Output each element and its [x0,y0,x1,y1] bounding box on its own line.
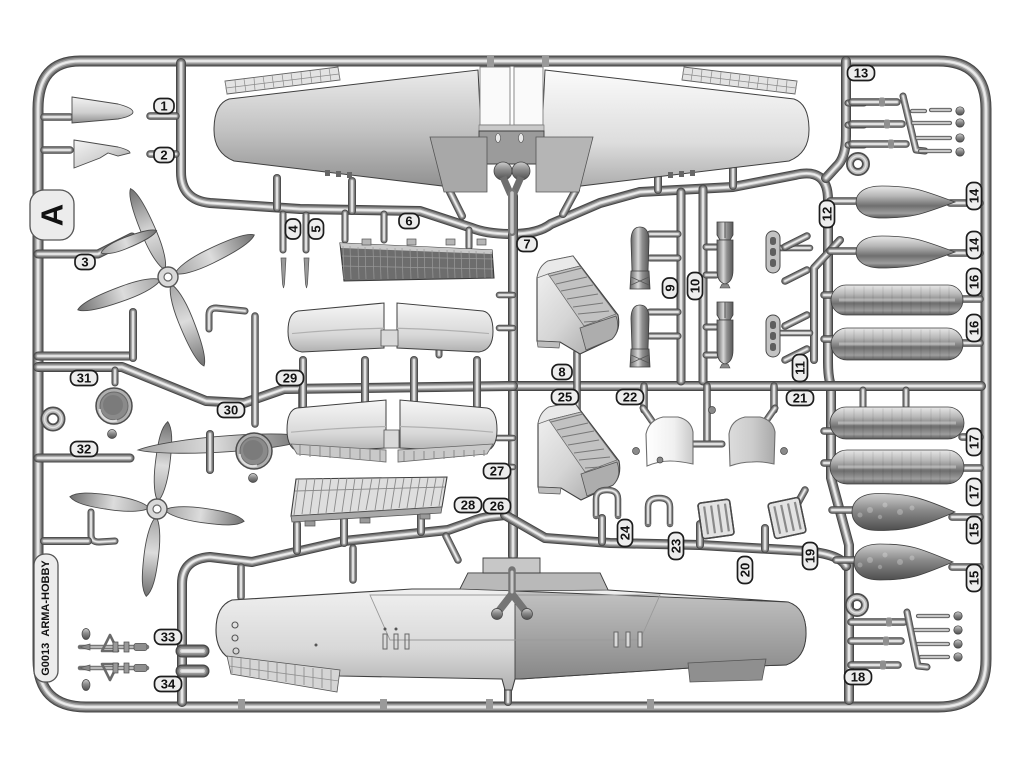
svg-text:16: 16 [967,275,982,289]
svg-text:A: A [35,204,70,226]
svg-text:24: 24 [618,525,633,540]
svg-text:18: 18 [851,670,865,685]
svg-text:20: 20 [738,563,753,577]
svg-text:G0013 ARMA-HOBBY: G0013 ARMA-HOBBY [40,560,52,676]
svg-text:4: 4 [286,225,301,233]
svg-text:28: 28 [461,498,475,513]
svg-text:10: 10 [688,279,703,293]
svg-text:32: 32 [77,442,91,457]
svg-text:8: 8 [558,365,565,380]
svg-text:16: 16 [967,321,982,335]
svg-text:15: 15 [967,523,982,537]
svg-text:14: 14 [967,188,982,203]
svg-text:33: 33 [161,630,175,645]
svg-text:17: 17 [967,485,982,499]
svg-text:6: 6 [405,214,412,229]
svg-text:11: 11 [793,361,808,375]
svg-text:9: 9 [663,284,678,291]
svg-text:27: 27 [490,464,504,479]
svg-text:17: 17 [967,435,982,449]
svg-text:25: 25 [558,390,572,405]
svg-text:21: 21 [793,391,807,406]
svg-text:15: 15 [967,571,982,585]
svg-text:22: 22 [623,390,637,405]
svg-text:14: 14 [967,237,982,252]
svg-text:2: 2 [160,148,167,163]
svg-text:30: 30 [224,403,238,418]
svg-text:3: 3 [81,255,88,270]
svg-text:19: 19 [803,549,818,563]
svg-text:29: 29 [283,371,297,386]
svg-text:26: 26 [490,499,504,514]
svg-text:7: 7 [523,237,530,252]
svg-text:31: 31 [77,371,91,386]
svg-text:13: 13 [854,66,868,81]
svg-text:34: 34 [161,677,176,692]
svg-text:12: 12 [820,207,835,221]
svg-text:23: 23 [669,539,684,553]
svg-text:1: 1 [160,99,167,114]
svg-text:5: 5 [309,225,324,232]
